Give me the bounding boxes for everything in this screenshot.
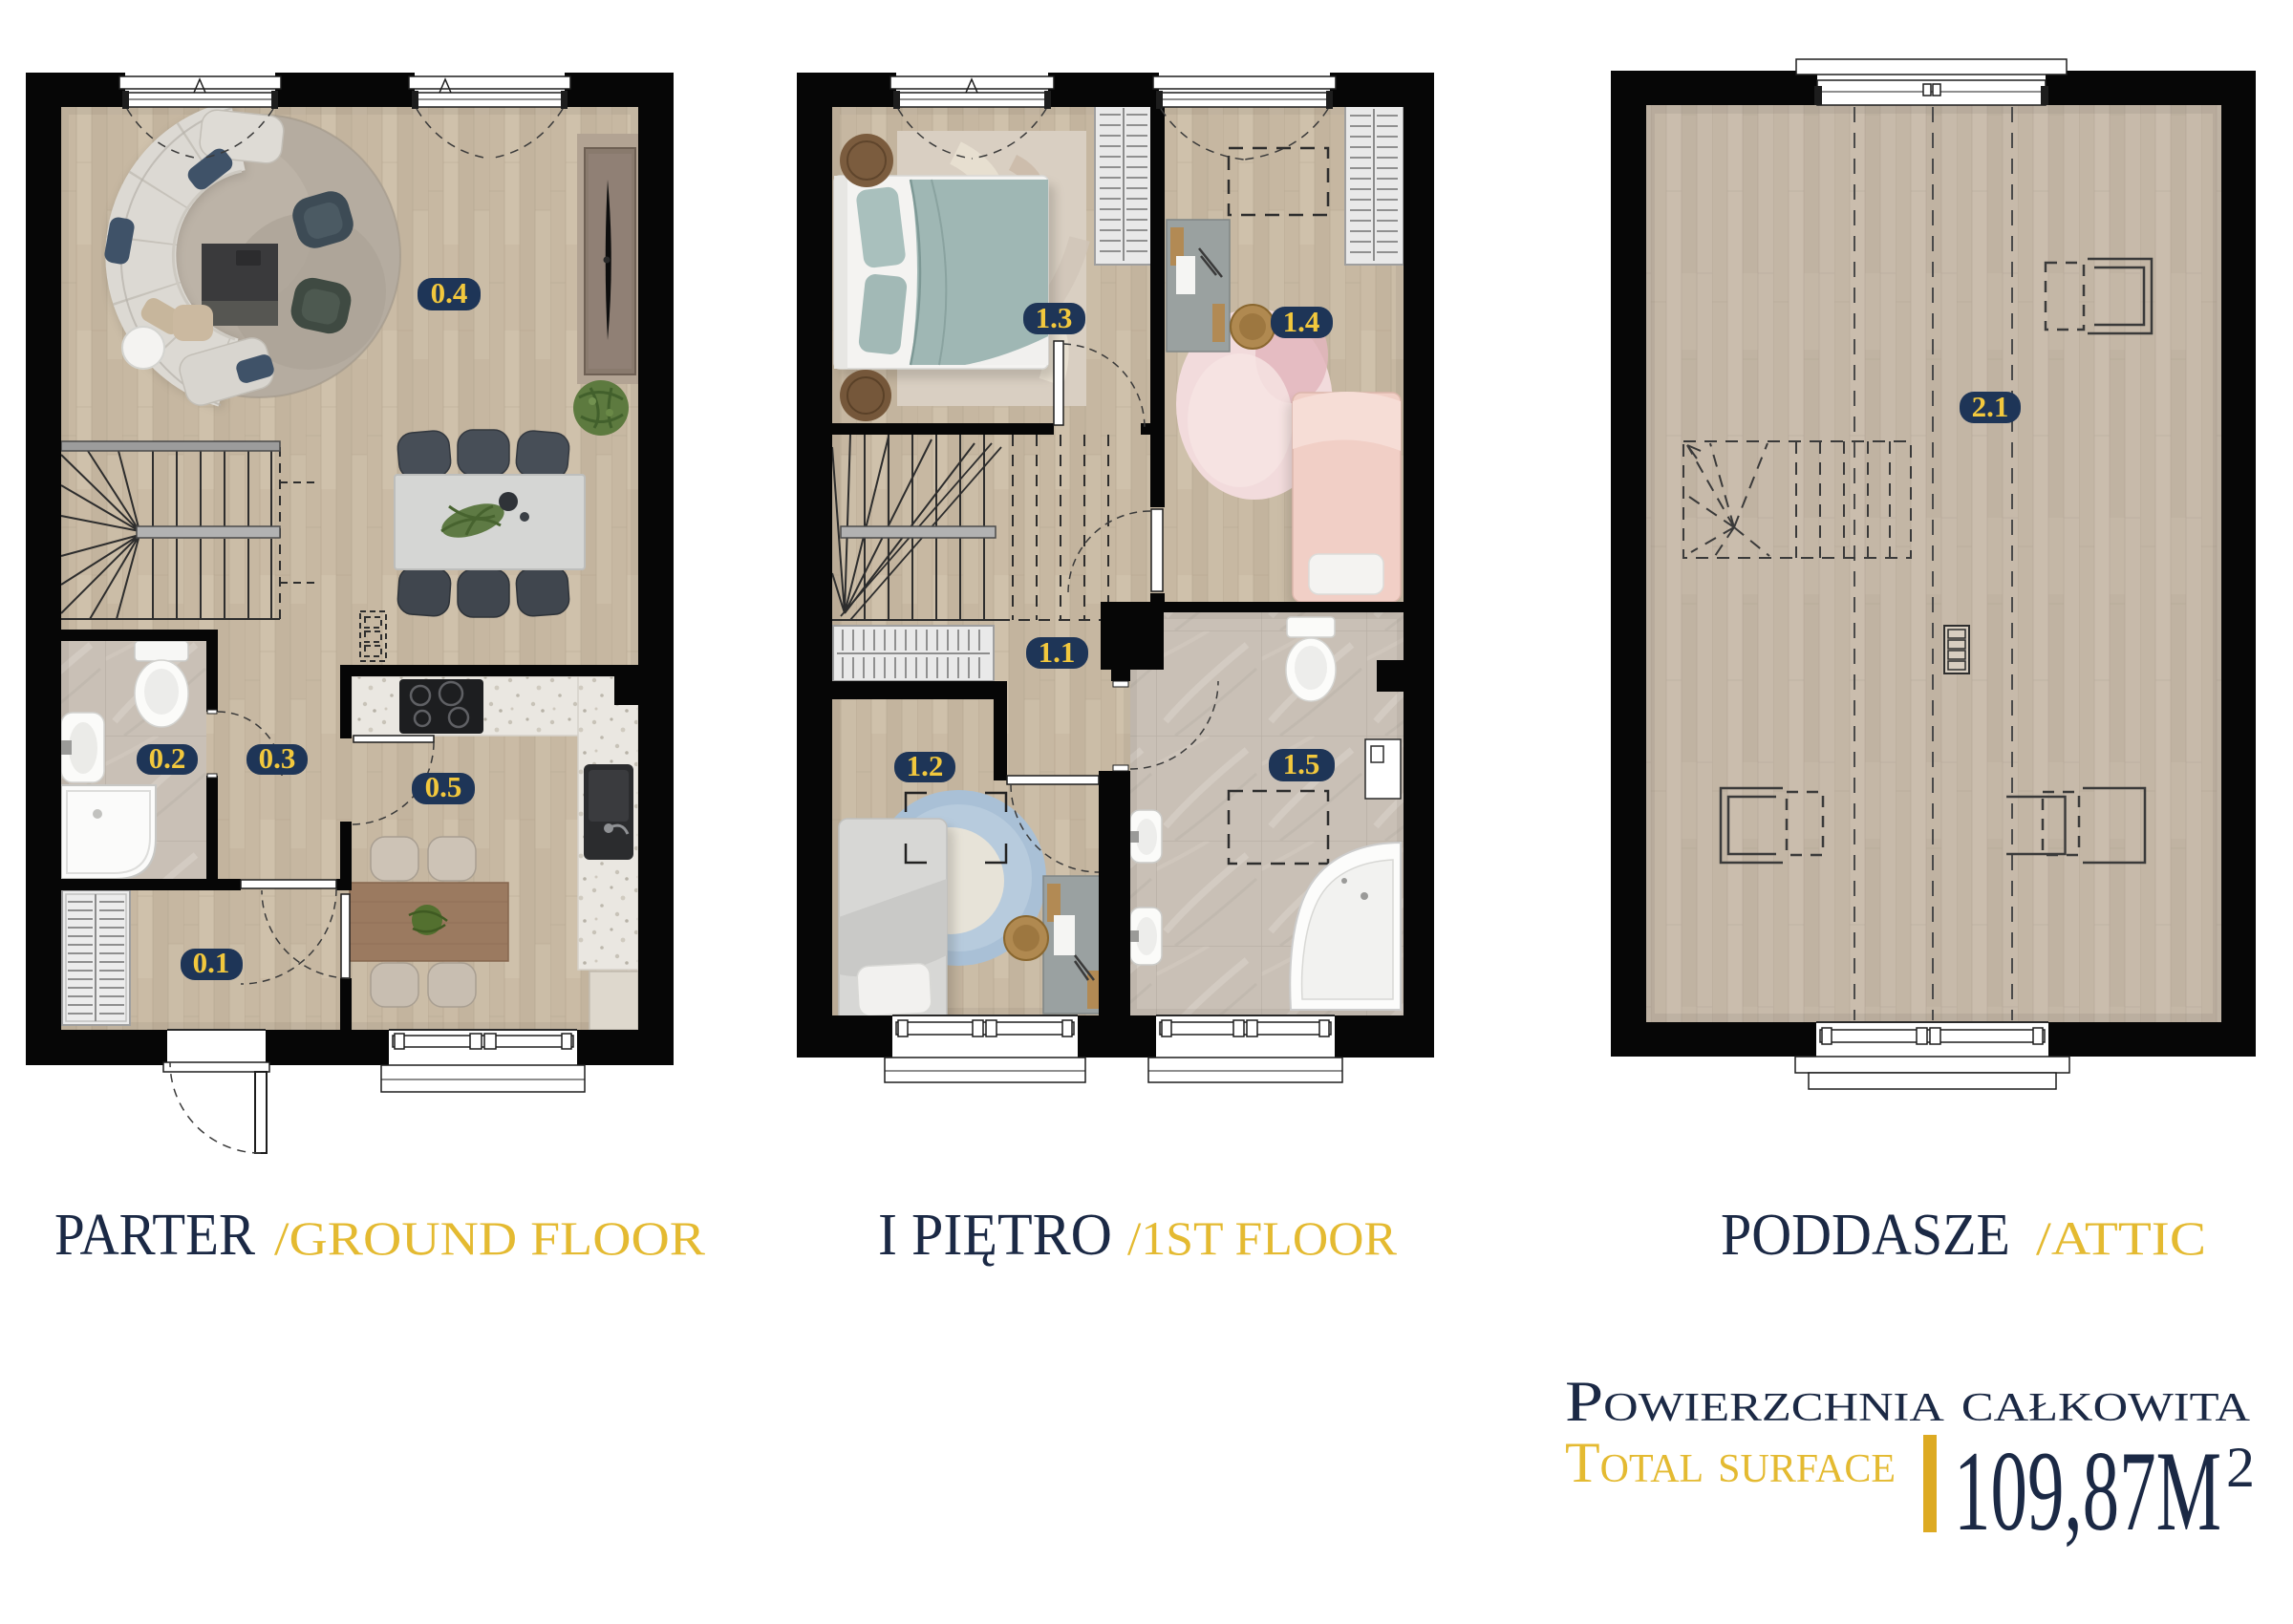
svg-text:1.1: 1.1: [1039, 635, 1076, 669]
svg-text:/ATTIC: /ATTIC: [2036, 1211, 2206, 1265]
svg-text:1.5: 1.5: [1283, 747, 1320, 780]
svg-text:0.1: 0.1: [193, 946, 230, 979]
svg-text:1.2: 1.2: [907, 749, 944, 782]
svg-text:I PIĘTRO: I PIĘTRO: [878, 1203, 1112, 1268]
svg-text:2: 2: [2226, 1436, 2255, 1499]
svg-text:Powierzchnia całkowita: Powierzchnia całkowita: [1565, 1370, 2251, 1433]
svg-text:PODDASZE: PODDASZE: [1721, 1203, 2010, 1268]
svg-text:2.1: 2.1: [1972, 390, 2009, 423]
svg-text:0.3: 0.3: [259, 741, 296, 775]
svg-text:/GROUND FLOOR: /GROUND FLOOR: [274, 1211, 706, 1265]
svg-text:0.5: 0.5: [425, 770, 462, 803]
svg-text:PARTER: PARTER: [54, 1203, 256, 1268]
svg-text:/1ST FLOOR: /1ST FLOOR: [1127, 1211, 1398, 1265]
svg-text:1.3: 1.3: [1036, 301, 1073, 334]
svg-text:0.4: 0.4: [431, 276, 468, 310]
svg-text:1.4: 1.4: [1283, 305, 1320, 338]
svg-text:Total surface: Total surface: [1565, 1431, 1896, 1494]
svg-text:0.2: 0.2: [149, 741, 186, 775]
svg-text:109,87M: 109,87M: [1954, 1427, 2221, 1554]
